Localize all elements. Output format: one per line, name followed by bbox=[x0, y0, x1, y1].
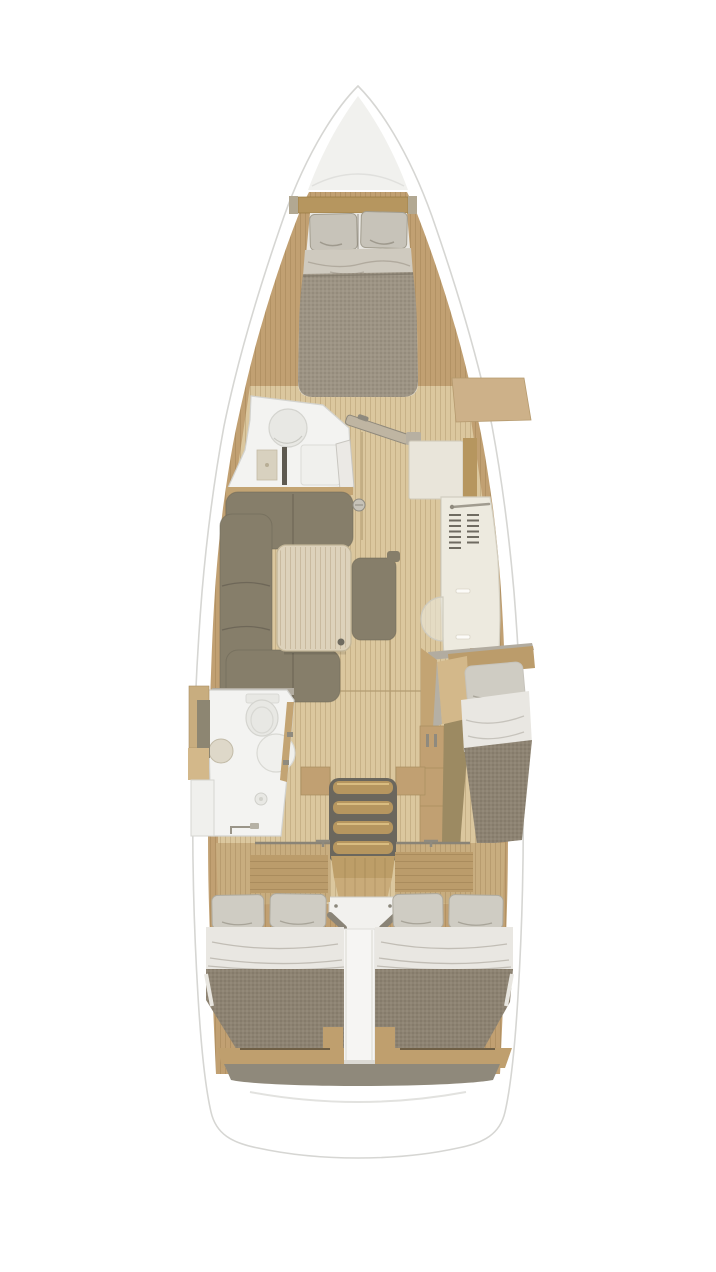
headboard-shelf bbox=[298, 197, 408, 213]
chart-table-side bbox=[463, 438, 477, 500]
wardrobe-handle-2 bbox=[434, 734, 437, 747]
yacht-floorplan-page bbox=[0, 0, 716, 1272]
mid-starboard-cabin bbox=[420, 643, 535, 845]
locker-latch-1 bbox=[456, 589, 470, 593]
forward-seat bbox=[452, 378, 531, 422]
center-column bbox=[343, 929, 375, 1065]
bench-tab bbox=[387, 551, 400, 562]
salon-table-grain bbox=[279, 547, 349, 649]
shower-basin bbox=[269, 409, 307, 447]
door-track-slot bbox=[282, 447, 287, 485]
stern-ledge bbox=[224, 1064, 500, 1086]
shower-drain-center bbox=[259, 797, 263, 801]
tread-2 bbox=[333, 801, 393, 814]
port-shelf bbox=[191, 780, 214, 836]
stair-side-block-left bbox=[301, 767, 330, 795]
door-hinge-1 bbox=[287, 732, 293, 737]
stair-side-block-right bbox=[396, 767, 425, 795]
locker-latch-2 bbox=[456, 635, 470, 639]
aft-head bbox=[188, 686, 295, 836]
stair-ramp bbox=[334, 878, 392, 899]
bed-pillow-2 bbox=[449, 895, 504, 930]
shower-mixer-head bbox=[250, 823, 259, 829]
yacht-floorplan bbox=[0, 0, 716, 1272]
tread-4 bbox=[333, 841, 393, 854]
tread-3 bbox=[333, 821, 393, 834]
port-cabinet-lower bbox=[188, 748, 209, 780]
headboard-end-left bbox=[289, 196, 298, 214]
bed-pillow-2 bbox=[270, 894, 327, 929]
vberth-blanket bbox=[298, 272, 418, 397]
bench-seat bbox=[352, 558, 396, 640]
box-screw-right bbox=[388, 904, 392, 908]
headboard-slats-right bbox=[395, 852, 473, 892]
aft-cabin-port bbox=[206, 894, 344, 1058]
galley-handle-knob bbox=[450, 505, 454, 509]
cup-holder bbox=[338, 639, 345, 646]
vanity-knob bbox=[265, 463, 269, 467]
counter-sink bbox=[209, 739, 233, 763]
vberth-pillow-right bbox=[361, 211, 408, 248]
box-screw-left bbox=[334, 904, 338, 908]
headboard-slats-left bbox=[250, 855, 328, 893]
headboard-end-right bbox=[408, 196, 417, 214]
chart-table-top bbox=[409, 441, 463, 499]
wardrobe-handle-1 bbox=[426, 734, 429, 747]
door-hinge-2 bbox=[283, 760, 289, 765]
tread-1 bbox=[333, 781, 393, 794]
shower-tray bbox=[301, 445, 340, 485]
